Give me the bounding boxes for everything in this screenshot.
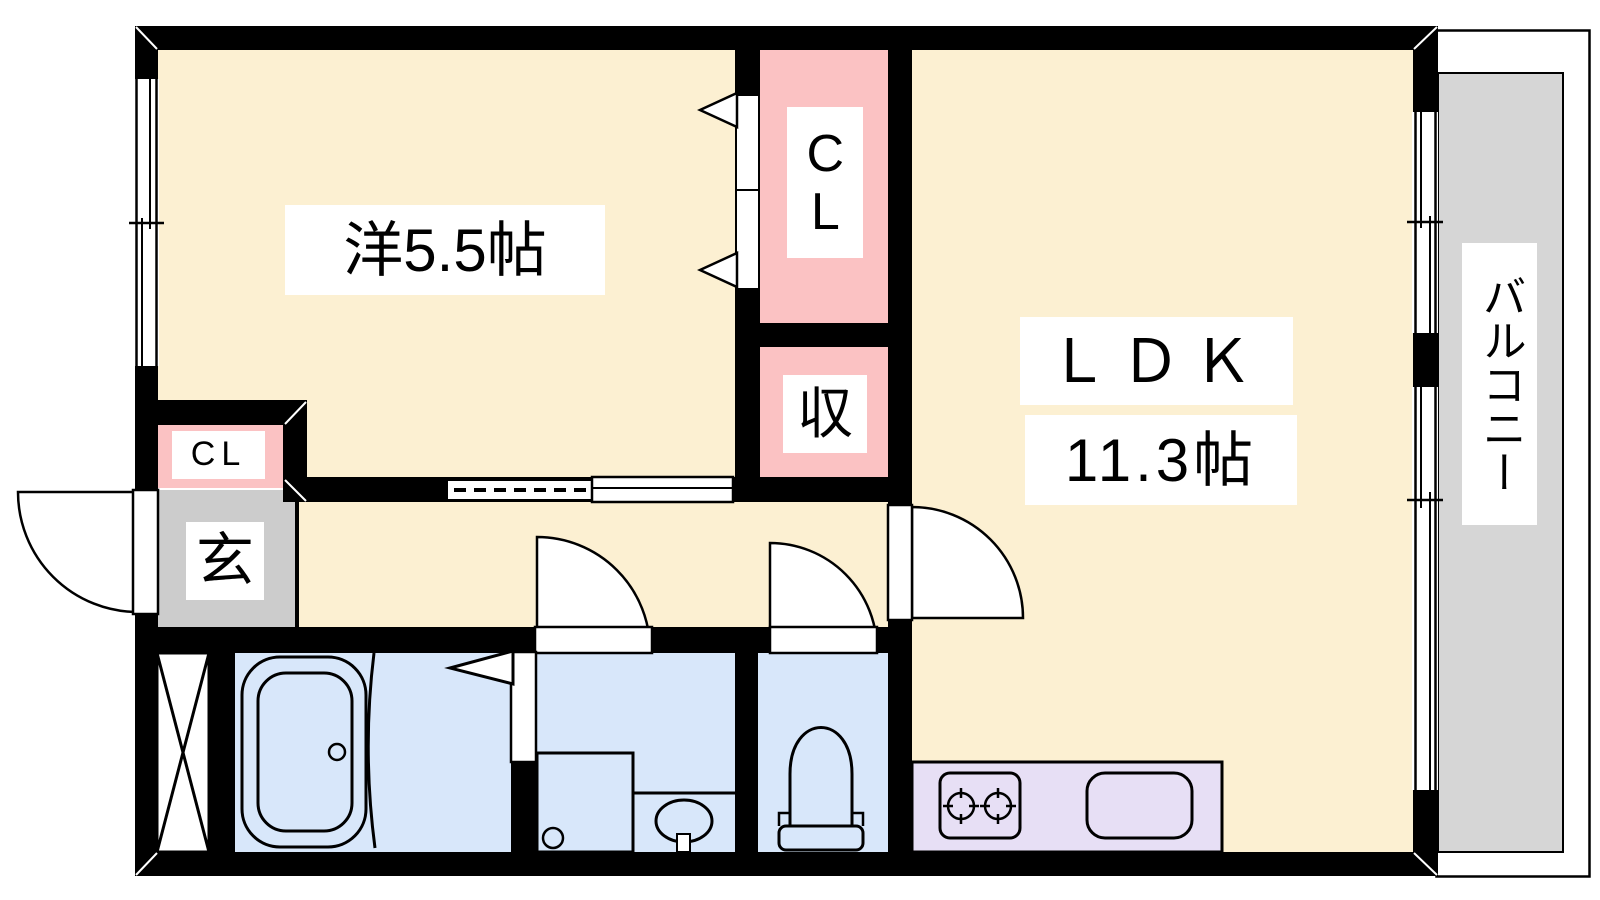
- wall-washroom-toilet: [735, 653, 758, 852]
- wall-hallway-bottom: [135, 627, 912, 653]
- wall-closet-divider: [760, 323, 888, 347]
- room-washroom: [536, 653, 735, 852]
- wall-shaft-bath: [209, 653, 235, 852]
- wall-right-mullion: [1413, 333, 1438, 387]
- room-hallway: [299, 502, 888, 627]
- label-closet-main: CL: [787, 107, 863, 258]
- wall-right: [1413, 26, 1438, 876]
- wall-top: [135, 26, 1438, 50]
- floorplan: 洋5.5帖 CL 収 ＬＤＫ 11.3帖 CL 玄 バルコニー: [0, 0, 1600, 900]
- wall-left: [135, 26, 158, 876]
- wall-bottom: [135, 852, 1438, 876]
- label-closet-entry: CL: [172, 431, 265, 479]
- label-ldk-size: 11.3帖: [1025, 415, 1297, 505]
- pipe-shaft: [157, 653, 209, 852]
- label-entrance: 玄: [186, 522, 264, 600]
- wall-hallway-top: [283, 477, 888, 502]
- wall-western-east: [735, 50, 760, 477]
- label-western-room: 洋5.5帖: [285, 205, 605, 295]
- room-bathroom: [235, 653, 511, 852]
- entrance-step-edge: [295, 490, 299, 627]
- label-storage: 収: [783, 375, 867, 453]
- wall-ldk-west: [888, 50, 912, 852]
- wall-bath-washroom: [511, 762, 536, 852]
- wall-notch-vertical: [283, 400, 307, 502]
- label-ldk-name: ＬＤＫ: [1020, 317, 1293, 405]
- room-toilet: [758, 653, 888, 852]
- label-balcony: バルコニー: [1462, 243, 1537, 525]
- wall-notch-horizontal: [135, 400, 307, 425]
